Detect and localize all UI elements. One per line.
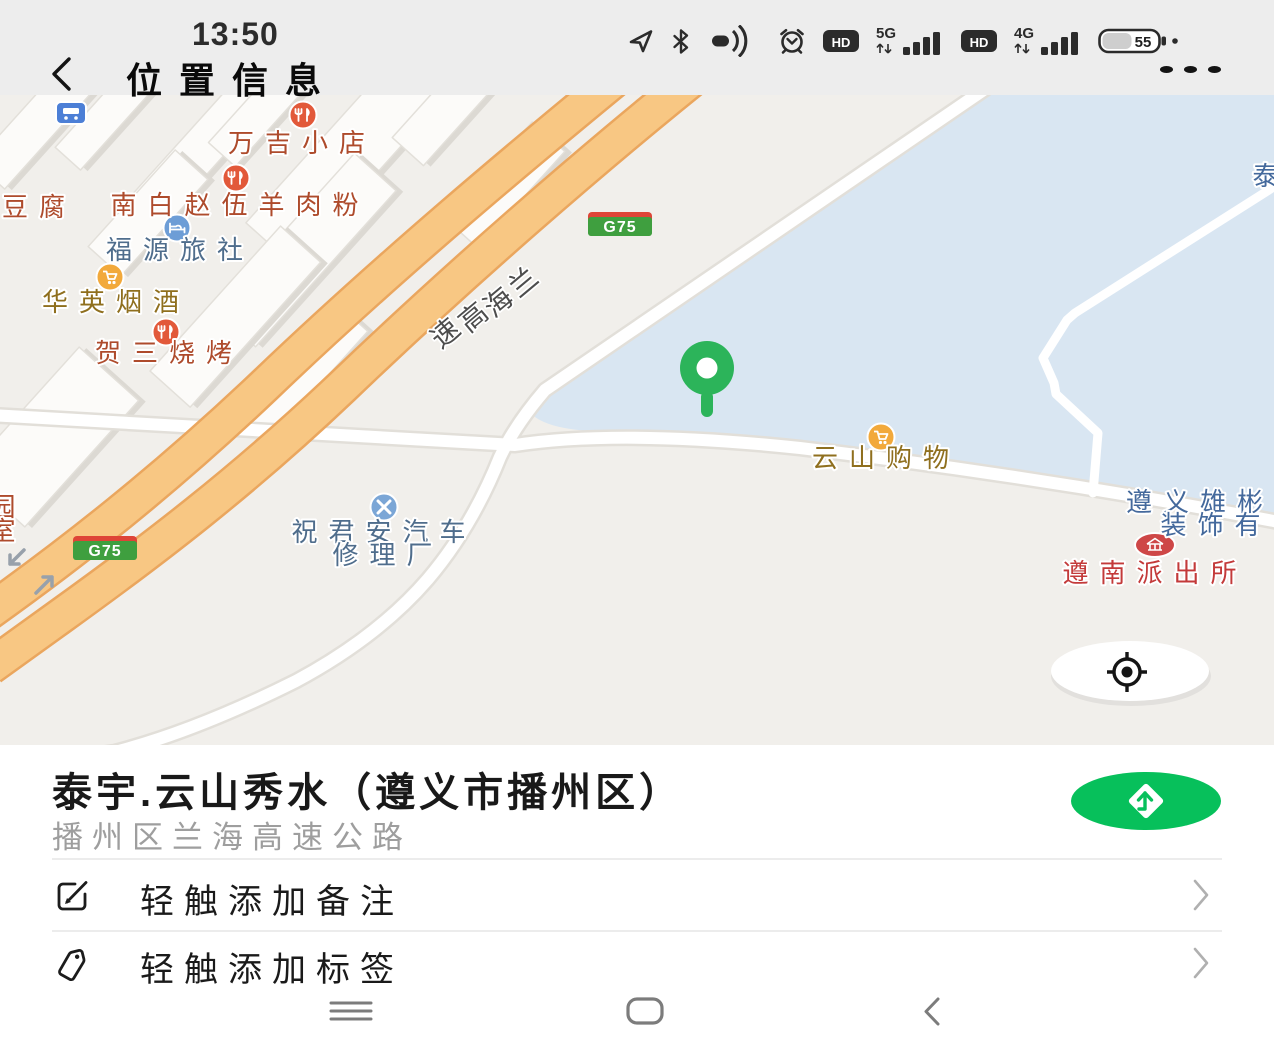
poi-label: 遵南派出所 xyxy=(1062,558,1247,588)
poi-label: 福源旅社 xyxy=(106,235,254,265)
location-arrow-icon xyxy=(628,28,654,54)
more-menu-button[interactable] xyxy=(1160,66,1221,73)
poi-label: 南白赵伍羊肉粉 xyxy=(110,190,369,220)
restaurant-icon xyxy=(290,102,317,129)
poi-label: 室 xyxy=(0,516,27,546)
route-badge-g75: G75 xyxy=(588,212,652,236)
status-icons: HD 5G HD 4G xyxy=(628,22,1182,60)
navigate-icon xyxy=(1122,777,1170,825)
poi-label: 华英烟酒 xyxy=(42,287,190,317)
transit-icon xyxy=(56,102,86,124)
add-note-row[interactable]: 轻触添加备注 xyxy=(0,860,1274,930)
poi-label: 修理厂 xyxy=(332,540,443,570)
page-title: 位置信息 xyxy=(126,52,338,104)
wechat-location-screen: 13:50 HD xyxy=(0,0,1274,1045)
status-time: 13:50 xyxy=(192,16,279,53)
svg-text:HD: HD xyxy=(832,35,851,50)
restaurant-icon xyxy=(223,165,250,192)
location-subtitle: 播州区兰海高速公路 xyxy=(52,812,412,857)
map[interactable]: 兰 海 高 速 G75 G75 xyxy=(0,95,1274,745)
poi-label: 泰 xyxy=(1252,161,1274,191)
svg-text:5G: 5G xyxy=(876,25,896,42)
recents-icon[interactable] xyxy=(624,995,666,1027)
signal-4g-icon: 4G xyxy=(1013,25,1083,57)
svg-text:HD: HD xyxy=(970,35,989,50)
location-title: 泰宇.云山秀水（遵义市播州区） xyxy=(52,760,683,818)
hd-icon: HD xyxy=(960,28,998,54)
poi-label: 云山购物 xyxy=(812,443,960,473)
hd-icon: HD xyxy=(822,28,860,54)
poi-label: 装饰有 xyxy=(1160,510,1271,540)
add-note-label: 轻触添加备注 xyxy=(140,874,404,923)
top-bar: 13:50 HD xyxy=(0,0,1274,95)
add-tag-label: 轻触添加标签 xyxy=(140,942,404,991)
svg-text:G75: G75 xyxy=(88,543,121,560)
route-badge-g75: G75 xyxy=(73,536,137,560)
tag-icon xyxy=(52,944,94,986)
locate-button[interactable] xyxy=(1051,641,1211,706)
chevron-right-icon xyxy=(1192,946,1210,980)
edit-note-icon xyxy=(52,876,92,916)
add-tag-row[interactable]: 轻触添加标签 xyxy=(0,928,1274,998)
system-nav-bar xyxy=(0,990,1274,1045)
svg-text:4G: 4G xyxy=(1014,25,1034,42)
navigate-button[interactable] xyxy=(1071,772,1221,830)
one-hand-mode-icon xyxy=(708,25,762,57)
back-icon[interactable] xyxy=(922,995,942,1029)
back-button[interactable] xyxy=(48,54,74,94)
menu-icon[interactable] xyxy=(328,995,374,1027)
svg-text:G75: G75 xyxy=(603,219,636,236)
battery-icon: 55 xyxy=(1098,26,1182,56)
alarm-icon xyxy=(777,26,807,56)
chevron-right-icon xyxy=(1192,878,1210,912)
poi-label: 豆腐 xyxy=(2,192,76,222)
svg-text:55: 55 xyxy=(1135,34,1152,51)
signal-5g-icon: 5G xyxy=(875,25,945,57)
poi-label: 贺三烧烤 xyxy=(95,338,243,368)
bluetooth-icon xyxy=(669,28,693,55)
poi-label: 万吉小店 xyxy=(228,128,376,158)
